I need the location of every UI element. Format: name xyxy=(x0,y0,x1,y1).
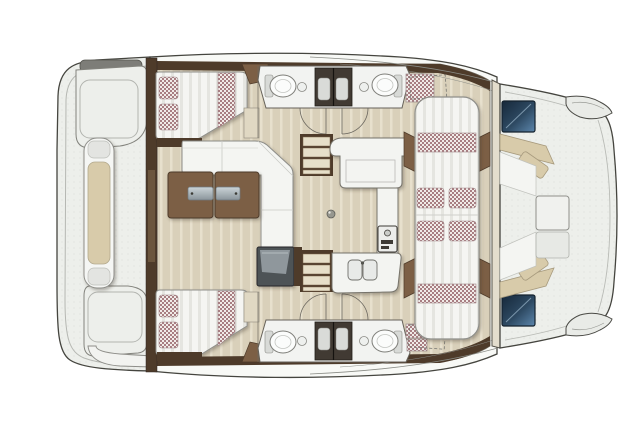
interior xyxy=(146,53,560,377)
toilet-bottom-right xyxy=(372,330,398,352)
toilet-top-right xyxy=(372,74,398,96)
faucet xyxy=(361,261,364,264)
catamaran-floorplan xyxy=(0,0,640,427)
shower-tray-bottom-left xyxy=(318,328,330,350)
lounge-pillow-2 xyxy=(449,188,476,208)
basin-top-left xyxy=(298,83,307,92)
storage-module xyxy=(257,247,294,286)
catamaran-floorplan-canvas xyxy=(0,0,640,427)
transom-bench-cushion xyxy=(88,162,110,264)
lounge-pillow-3 xyxy=(417,221,444,241)
basin-bottom-left xyxy=(298,337,307,346)
table-latch-left xyxy=(191,192,194,195)
berth-bottom-pillow-2 xyxy=(159,322,178,348)
storage-module-top xyxy=(260,250,290,274)
basin-bottom-right xyxy=(360,337,369,346)
shower-tray-bottom-right xyxy=(336,328,348,350)
sliding-door-track xyxy=(148,170,155,262)
shelf-bottom xyxy=(244,292,259,322)
cockpit-table xyxy=(536,196,569,230)
toilet-bottom-left xyxy=(270,331,296,353)
lounge-band-top xyxy=(418,133,476,152)
sink-bowl-right xyxy=(363,260,377,280)
lounge-trim-bottom-right xyxy=(478,258,490,298)
lounge-trim-top-right xyxy=(478,132,490,172)
berth-top-pillow-2 xyxy=(159,104,178,130)
table-latch-right xyxy=(235,192,238,195)
stove xyxy=(378,226,397,252)
table-leg-socket-highlight xyxy=(328,211,330,213)
corner-seat-top xyxy=(76,66,147,148)
aft-deck xyxy=(57,57,152,371)
lounge-trim-bottom-left xyxy=(404,258,416,298)
lounge-pillow-1 xyxy=(417,188,444,208)
berth-bottom-foot-locker xyxy=(157,352,202,361)
deck-hatch-window-top xyxy=(502,101,535,132)
shelf-top xyxy=(244,108,259,138)
lounge-trim-top-left xyxy=(404,132,416,172)
forward-bulkhead xyxy=(492,80,500,348)
shower-tray-top-right xyxy=(336,78,348,100)
shower-tray-top-left xyxy=(318,78,330,100)
sink-bowl-left xyxy=(348,260,362,280)
berth-top-pillow-1 xyxy=(159,77,178,99)
table-leg-socket xyxy=(327,210,335,218)
berth-bottom-pillow-1 xyxy=(159,295,178,317)
companionway-steps-bottom xyxy=(300,250,333,292)
cockpit-table-extension xyxy=(536,232,569,258)
foredeck-cockpit xyxy=(500,84,617,348)
folding-table xyxy=(168,172,259,218)
galley-top-counter xyxy=(330,138,414,188)
companionway-steps-top xyxy=(300,134,333,176)
transom-bench xyxy=(84,138,114,288)
lounge-pillow-4 xyxy=(449,221,476,241)
basin-top-right xyxy=(360,83,369,92)
toilet-top-left xyxy=(270,75,296,97)
deck-hatch-window-bottom xyxy=(502,295,535,326)
center-lounge xyxy=(404,97,490,339)
lounge-band-bottom xyxy=(418,284,476,303)
